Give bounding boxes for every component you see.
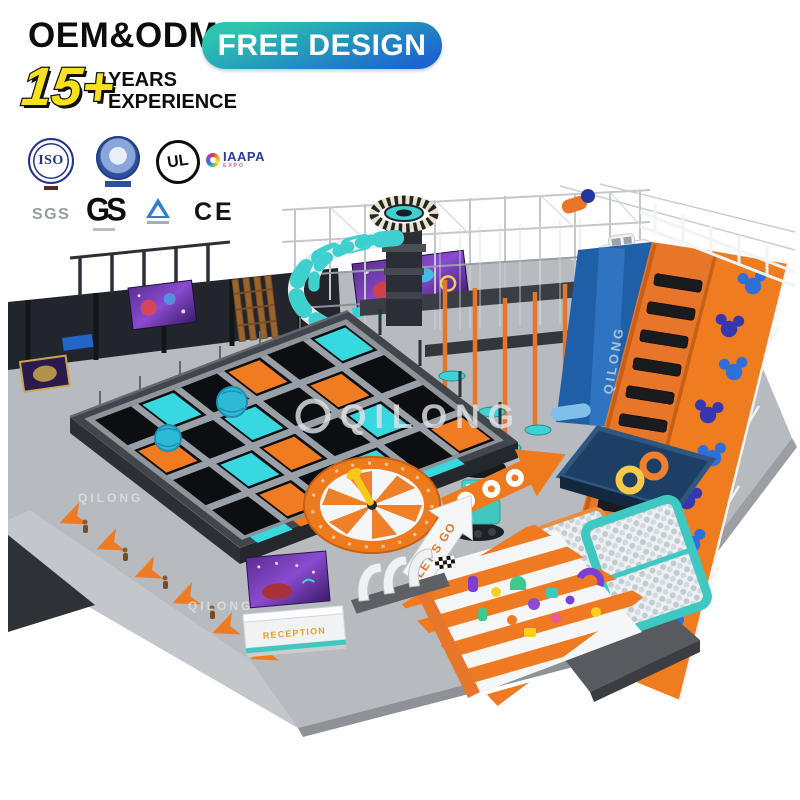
wooden-climb-ladder [232,275,278,341]
wall-banner-small [128,280,197,329]
iaapa-ring-icon [206,153,220,167]
experience-word: EXPERIENCE [108,92,237,114]
framed-picture [20,356,70,392]
free-design-label: FREE DESIGN [218,29,427,63]
years-word: YEARS [108,70,237,92]
oem-odm-title: OEM&ODM [28,16,218,56]
iaapa-badge: IAAPA EXPO [206,150,265,169]
years-experience-label: YEARS EXPERIENCE [108,70,237,113]
checkered-flag-icon [434,555,455,569]
iso-label: ISO [38,153,64,169]
watermark-small-2: QILONG [188,599,253,613]
product-banner: OEM&ODM FREE DESIGN 15+ YEARS EXPERIENCE… [0,0,800,800]
iaapa-label: IAAPA [223,150,265,163]
quality-seal-icon [96,136,140,180]
ul-badge: UL [156,140,200,184]
spinner-trampoline [304,457,440,553]
playground-render: LET'S GO RECEPTION QILONG [0,180,800,800]
iso-circle-icon: ISO [28,138,74,184]
ul-label: UL [166,152,190,173]
years-number: 15+ [19,56,117,118]
watermark-large: QILONG [340,398,522,436]
iaapa-sublabel: EXPO [223,164,245,169]
watermark-small-1: QILONG [78,491,143,505]
free-design-badge: FREE DESIGN [202,22,442,69]
